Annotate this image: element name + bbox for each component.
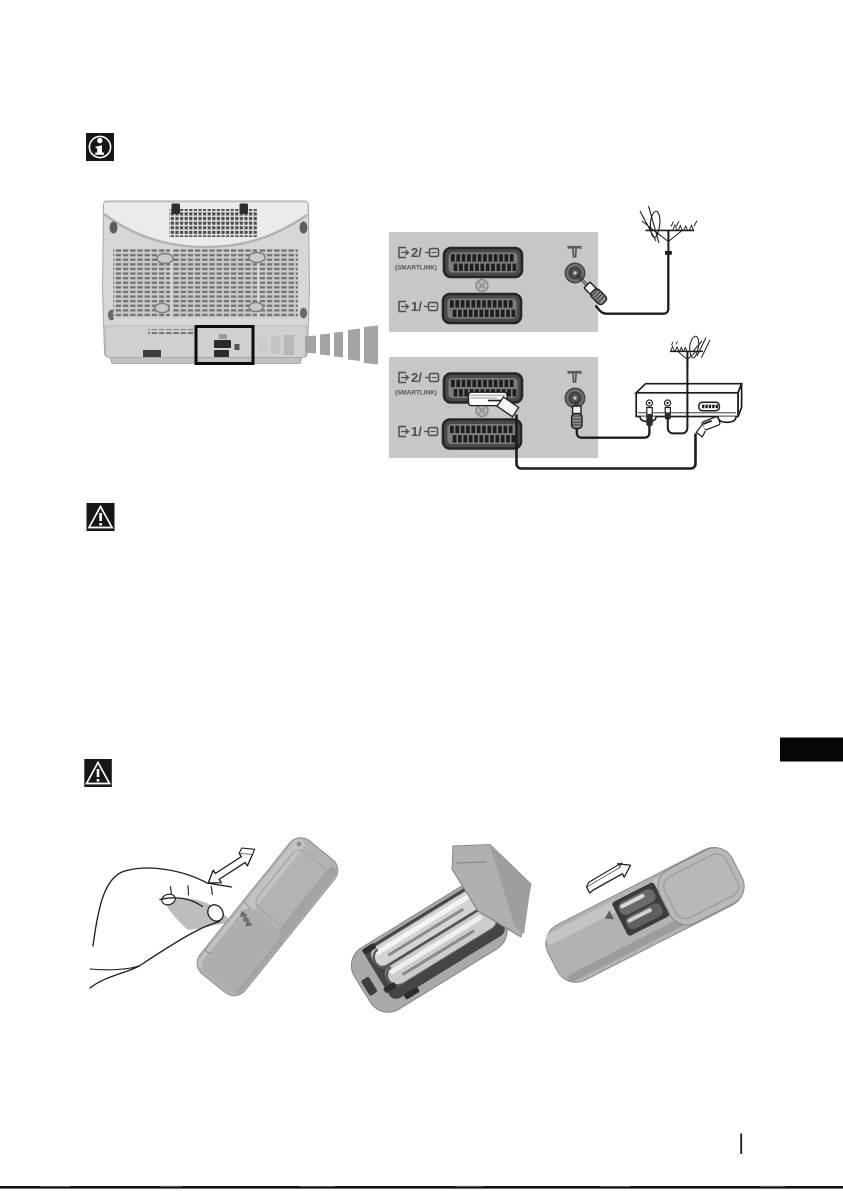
svg-text:(SMARTLINK): (SMARTLINK) <box>395 390 437 397</box>
svg-text:(SMARTLINK): (SMARTLINK) <box>395 265 437 272</box>
